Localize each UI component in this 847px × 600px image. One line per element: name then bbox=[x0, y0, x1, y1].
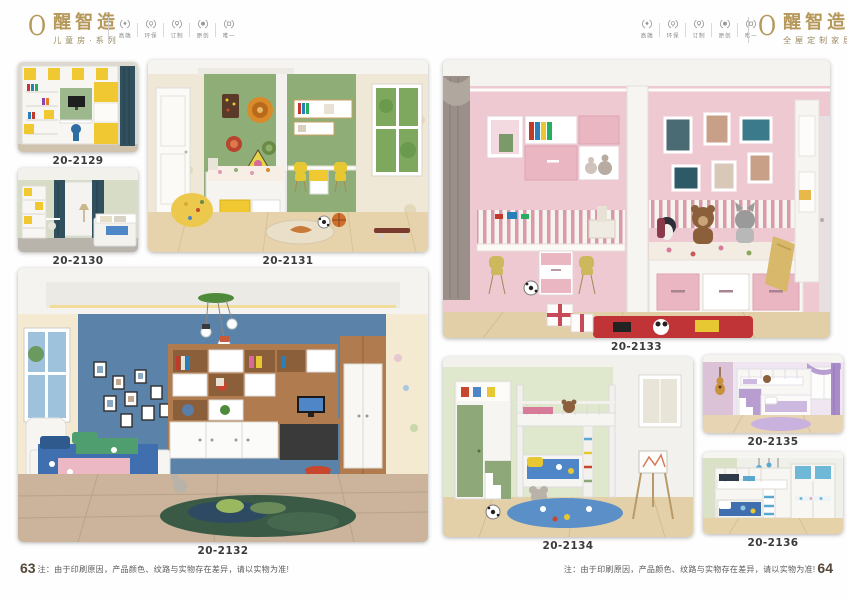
brand-mark: O bbox=[28, 13, 46, 41]
photo-card-20-2129: 20-2129 bbox=[18, 62, 138, 167]
badge-separator bbox=[685, 23, 686, 37]
brand-left: O 醒智造 儿童房·系列 bbox=[26, 13, 120, 46]
photo-card-20-2133: 20-2133 bbox=[443, 60, 830, 353]
room-illustration-bunk-bed-green-room bbox=[443, 357, 693, 537]
footer-right: 注：由于印刷原因，产品颜色、纹路与实物存在差异，请以实物为准! 64 bbox=[564, 561, 833, 575]
badge-separator bbox=[737, 23, 738, 37]
quality-badge: 高端 bbox=[636, 18, 657, 41]
laurel-wreath-icon bbox=[118, 18, 132, 30]
badge-separator bbox=[189, 23, 190, 37]
laurel-wreath-icon bbox=[170, 18, 184, 30]
badge-separator bbox=[163, 23, 164, 37]
brand-series-subtitle: 全屋定制家居 bbox=[783, 35, 847, 46]
photo-card-20-2131: 20-2131 bbox=[148, 60, 428, 267]
brand-name: 醒智造 bbox=[783, 13, 847, 33]
room-illustration-yellow-study bbox=[18, 62, 138, 152]
brand-series-subtitle: 儿童房·系列 bbox=[53, 35, 120, 46]
room-illustration-pink-girls-room bbox=[443, 60, 830, 338]
header-divider bbox=[748, 17, 749, 43]
photo-code-label: 20-2136 bbox=[703, 537, 843, 549]
photo-image bbox=[703, 452, 843, 534]
laurel-wreath-icon bbox=[144, 18, 158, 30]
laurel-wreath-icon bbox=[666, 18, 680, 30]
laurel-wreath-icon bbox=[640, 18, 654, 30]
photo-image bbox=[148, 60, 428, 252]
photo-card-20-2132: 20-2132 bbox=[18, 268, 428, 557]
quality-badge: 原创 bbox=[714, 18, 735, 41]
photo-code-label: 20-2131 bbox=[148, 255, 428, 267]
room-illustration-lilac-bunk-room bbox=[703, 355, 843, 433]
photo-card-20-2136: 20-2136 bbox=[703, 452, 843, 549]
photo-image bbox=[703, 355, 843, 433]
brand-right: O 醒智造 全屋定制家居 bbox=[756, 13, 847, 46]
photo-code-label: 20-2135 bbox=[703, 436, 843, 448]
photo-image bbox=[18, 268, 428, 542]
header-divider bbox=[108, 17, 109, 43]
room-illustration-blue-bunk-room bbox=[703, 452, 843, 534]
room-illustration-blue-wall-bedroom bbox=[18, 268, 428, 542]
laurel-wreath-icon bbox=[692, 18, 706, 30]
photo-image bbox=[443, 60, 830, 338]
photo-image bbox=[443, 357, 693, 537]
photo-code-label: 20-2133 bbox=[443, 341, 830, 353]
page-number-left: 63 bbox=[20, 561, 36, 575]
laurel-wreath-icon bbox=[196, 18, 210, 30]
photo-card-20-2135: 20-2135 bbox=[703, 355, 843, 448]
photo-card-20-2130: 20-2130 bbox=[18, 168, 138, 267]
photo-code-label: 20-2130 bbox=[18, 255, 138, 267]
print-disclaimer-left: 注：由于印刷原因，产品颜色、纹路与实物存在差异，请以实物为准! bbox=[38, 564, 290, 575]
badge-separator bbox=[659, 23, 660, 37]
quality-badge: 高端 bbox=[114, 18, 135, 41]
footer-left: 63 注：由于印刷原因，产品颜色、纹路与实物存在差异，请以实物为准! bbox=[20, 561, 289, 575]
print-disclaimer-right: 注：由于印刷原因，产品颜色、纹路与实物存在差异，请以实物为准! bbox=[564, 564, 816, 575]
quality-badge: 环保 bbox=[140, 18, 161, 41]
photo-code-label: 20-2132 bbox=[18, 545, 428, 557]
photo-card-20-2134: 20-2134 bbox=[443, 357, 693, 552]
brand-name: 醒智造 bbox=[53, 13, 120, 33]
room-illustration-teal-curtain-bedroom bbox=[18, 168, 138, 252]
brand-mark: O bbox=[758, 13, 776, 41]
photo-image bbox=[18, 62, 138, 152]
badge-separator bbox=[215, 23, 216, 37]
quality-badge: 唯一 bbox=[218, 18, 239, 41]
badge-row-left: 高端 环保 订制 原创 唯一 bbox=[114, 18, 239, 41]
quality-badge: 订制 bbox=[166, 18, 187, 41]
laurel-wreath-icon bbox=[718, 18, 732, 30]
catalog-spread: O 醒智造 儿童房·系列 高端 环保 订制 原创 唯一 bbox=[0, 0, 847, 600]
badge-separator bbox=[137, 23, 138, 37]
room-illustration-green-wall-kids-room bbox=[148, 60, 428, 252]
quality-badge: 订制 bbox=[688, 18, 709, 41]
quality-badge: 原创 bbox=[192, 18, 213, 41]
photo-code-label: 20-2129 bbox=[18, 155, 138, 167]
badge-separator bbox=[711, 23, 712, 37]
photo-image bbox=[18, 168, 138, 252]
badge-row-right: 高端 环保 订制 原创 唯一 bbox=[636, 18, 761, 41]
laurel-wreath-icon bbox=[222, 18, 236, 30]
photo-code-label: 20-2134 bbox=[443, 540, 693, 552]
quality-badge: 环保 bbox=[662, 18, 683, 41]
page-number-right: 64 bbox=[817, 561, 833, 575]
